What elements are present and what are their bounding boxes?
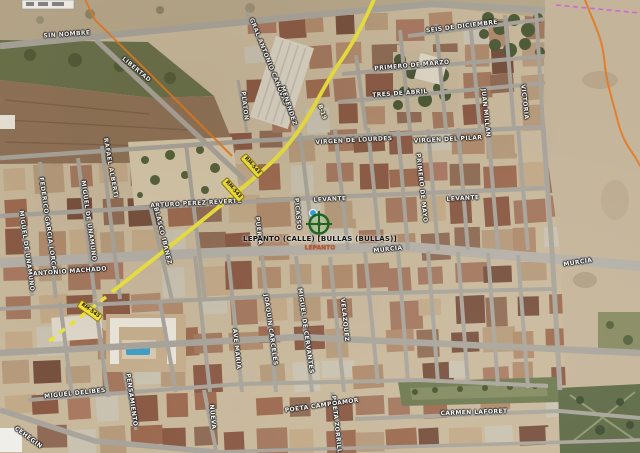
crosshair-center — [317, 222, 321, 226]
map-canvas[interactable]: SIN NOMBRELIBERTADGRAL ANTONIO CANOVASME… — [0, 0, 640, 453]
corner-label-box — [22, 0, 74, 9]
satellite-layer — [0, 0, 640, 453]
search-result-label: LEPANTO (CALLE) [BULLAS (BULLAS)] — [243, 235, 397, 243]
search-result-sublabel: LEPANTO — [305, 245, 336, 252]
